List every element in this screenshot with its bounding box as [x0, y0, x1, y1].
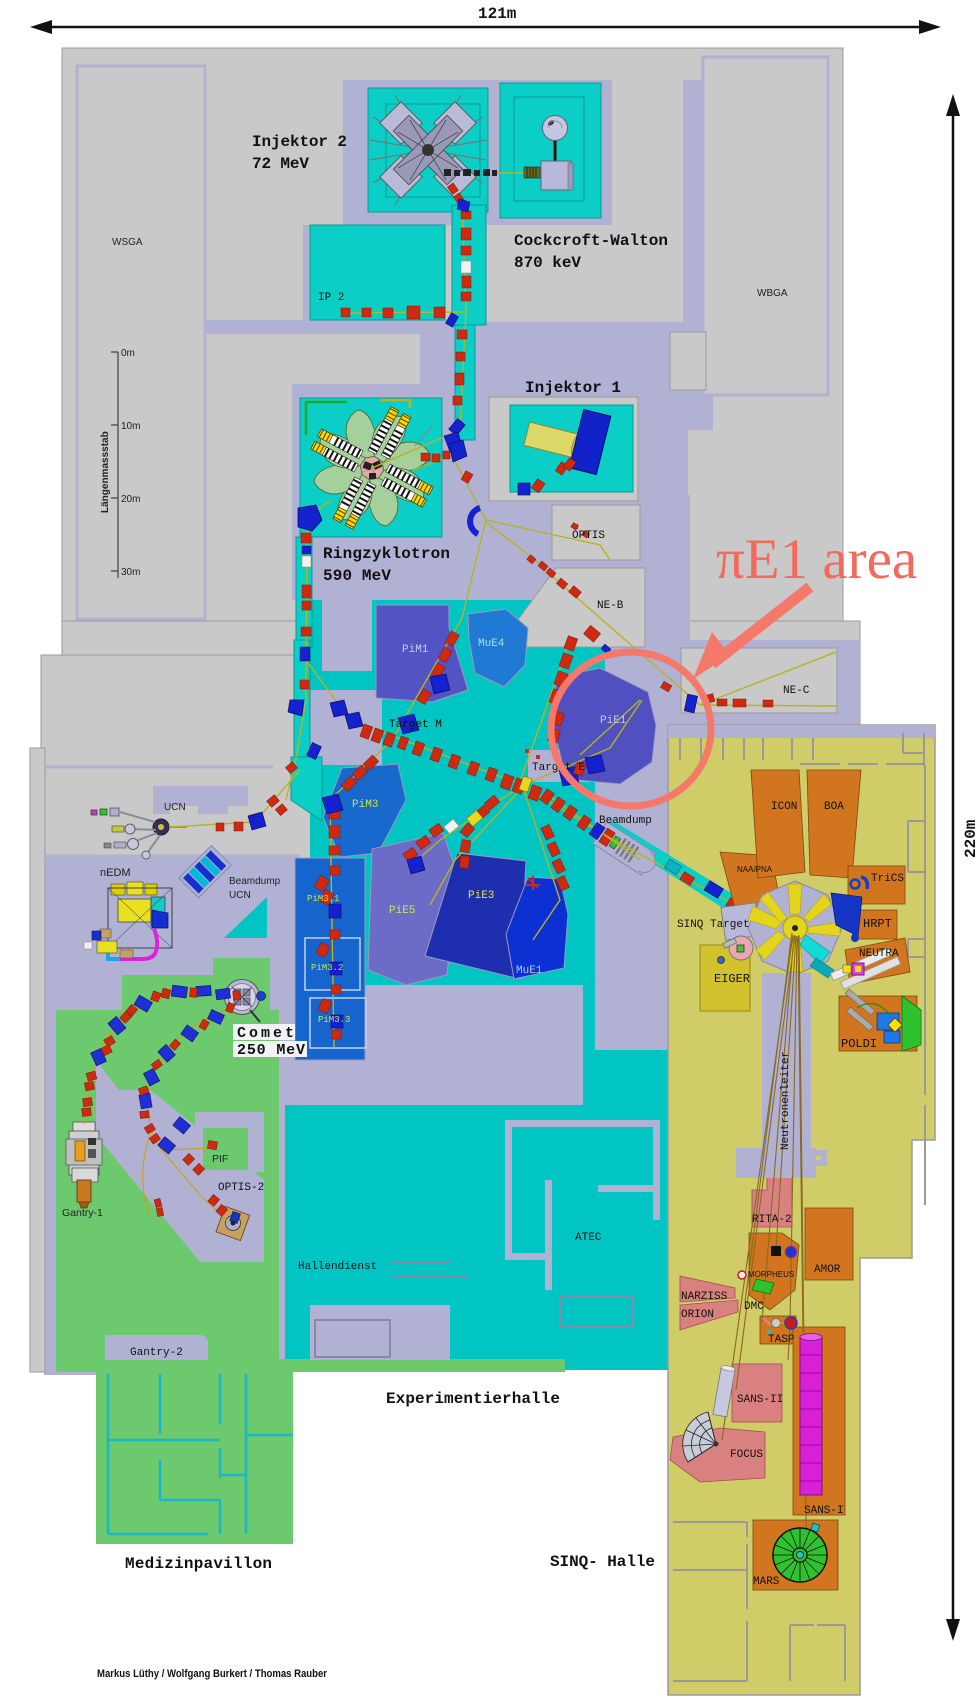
svg-text:SANS-I: SANS-I [804, 1505, 844, 1517]
svg-text:IP 2: IP 2 [318, 292, 344, 304]
svg-text:Injektor 2: Injektor 2 [252, 133, 347, 151]
svg-text:PiE5: PiE5 [389, 905, 415, 917]
svg-text:NEUTRA: NEUTRA [859, 948, 899, 960]
svg-text:870 keV: 870 keV [514, 254, 581, 272]
svg-text:TriCS: TriCS [871, 873, 904, 885]
svg-text:ORION: ORION [681, 1309, 714, 1321]
svg-text:72 MeV: 72 MeV [252, 155, 309, 173]
svg-text:20m: 20m [121, 494, 140, 505]
svg-text:WBGA: WBGA [757, 288, 788, 299]
svg-text:PiM3.3: PiM3.3 [318, 1015, 350, 1025]
svg-text:FOCUS: FOCUS [730, 1449, 763, 1461]
svg-text:AMOR: AMOR [814, 1264, 841, 1276]
svg-text:Gantry-1: Gantry-1 [62, 1207, 103, 1219]
svg-text:PIF: PIF [212, 1153, 228, 1165]
svg-text:Ringzyklotron: Ringzyklotron [323, 545, 450, 563]
svg-text:ATEC: ATEC [575, 1232, 602, 1244]
svg-text:PiM1: PiM1 [402, 644, 429, 656]
svg-text:Gantry-2: Gantry-2 [130, 1347, 183, 1359]
svg-text:MuE4: MuE4 [478, 638, 505, 650]
svg-text:590 MeV: 590 MeV [323, 567, 391, 585]
svg-text:PiM3.1: PiM3.1 [307, 894, 339, 904]
svg-text:Medizinpavillon: Medizinpavillon [125, 1555, 272, 1573]
svg-text:PiE3: PiE3 [468, 890, 494, 902]
svg-text:PiM3: PiM3 [352, 799, 378, 811]
svg-text:UCN: UCN [229, 890, 251, 901]
svg-text:nEDM: nEDM [100, 867, 131, 879]
svg-text:NAA/PNA: NAA/PNA [737, 865, 773, 874]
svg-text:MORPHEUS: MORPHEUS [748, 1270, 794, 1279]
svg-text:0m: 0m [121, 348, 135, 359]
svg-text:Injektor 1: Injektor 1 [525, 379, 621, 397]
svg-text:Target M: Target M [389, 719, 442, 731]
svg-text:10m: 10m [121, 421, 140, 432]
svg-text:OPTIS-2: OPTIS-2 [218, 1182, 264, 1194]
svg-text:Beamdump: Beamdump [229, 876, 281, 887]
svg-text:UCN: UCN [164, 802, 186, 813]
svg-text:PiM3.2: PiM3.2 [311, 963, 343, 973]
svg-text:ICON: ICON [771, 801, 797, 813]
svg-text:HRPT: HRPT [863, 917, 892, 931]
svg-text:Experimentierhalle: Experimentierhalle [386, 1390, 560, 1408]
svg-text:220m: 220m [962, 819, 976, 858]
svg-text:POLDI: POLDI [841, 1037, 877, 1051]
svg-text:SINQ Target: SINQ Target [677, 919, 750, 931]
svg-text:DMC: DMC [744, 1301, 764, 1313]
svg-text:Comet: Comet [237, 1025, 294, 1042]
svg-text:PiE1: PiE1 [600, 715, 627, 727]
svg-text:NE-B: NE-B [597, 600, 624, 612]
svg-text:TASP: TASP [768, 1334, 795, 1346]
svg-text:OPTIS: OPTIS [572, 530, 605, 542]
svg-text:BOA: BOA [824, 801, 844, 813]
svg-text:πE1 area: πE1 area [716, 528, 917, 591]
svg-text:Cockcroft-Walton: Cockcroft-Walton [514, 232, 668, 250]
svg-text:NARZISS: NARZISS [681, 1291, 728, 1303]
svg-text:30m: 30m [121, 567, 140, 578]
svg-text:EIGER: EIGER [714, 972, 750, 986]
svg-text:WSGA: WSGA [112, 237, 143, 248]
svg-text:SANS-II: SANS-II [737, 1394, 783, 1406]
svg-text:Hallendienst: Hallendienst [298, 1261, 377, 1273]
svg-text:SINQ- Halle: SINQ- Halle [550, 1553, 655, 1571]
svg-text:Längenmassstab: Längenmassstab [100, 431, 111, 513]
svg-text:121m: 121m [478, 5, 517, 23]
svg-text:Beamdump: Beamdump [599, 815, 652, 827]
svg-text:Markus Lüthy / Wolfgang Burker: Markus Lüthy / Wolfgang Burkert / Thomas… [97, 1668, 328, 1680]
svg-text:MuE1: MuE1 [516, 965, 543, 977]
svg-text:MARS: MARS [753, 1576, 780, 1588]
svg-text:NE-C: NE-C [783, 685, 810, 697]
svg-text:RITA-2: RITA-2 [752, 1214, 792, 1226]
svg-text:Neutronenleiter: Neutronenleiter [780, 1051, 792, 1150]
svg-text:250 MeV: 250 MeV [237, 1042, 305, 1059]
